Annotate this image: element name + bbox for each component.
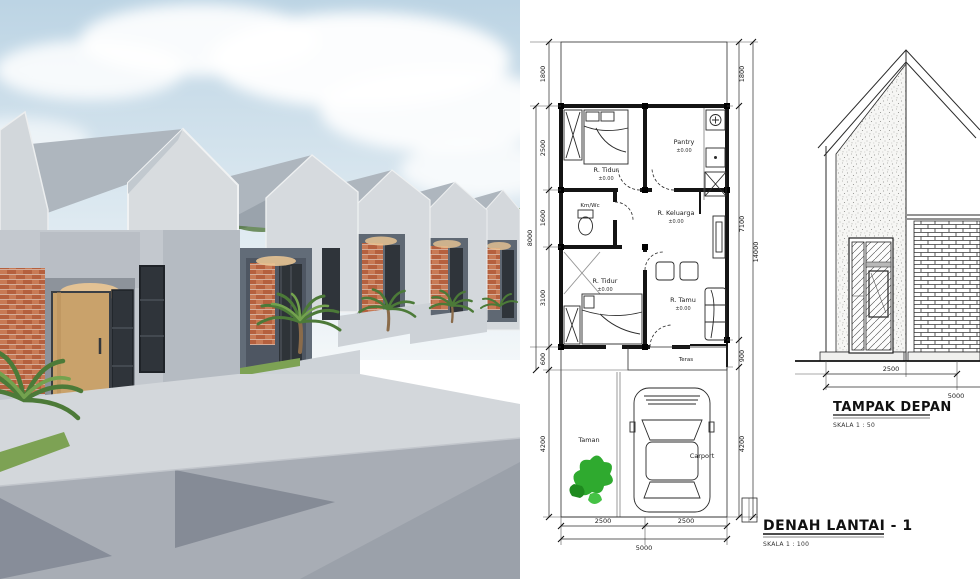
floor-plan-title: DENAH LANTAI - 1 — [763, 518, 913, 534]
dim-right-14000: 14000 — [752, 242, 760, 263]
brick-elevation-wall — [914, 221, 980, 352]
front-window — [140, 266, 164, 372]
room-label-family-room: R. Keluarga — [658, 209, 695, 217]
ground — [0, 374, 520, 579]
dim-right-4200: 4200 — [738, 436, 746, 453]
dim-left-3100: 3100 — [539, 290, 547, 307]
room-label-carport: Carport — [690, 452, 715, 460]
svg-text:±0.00: ±0.00 — [668, 219, 683, 225]
floor-plan-scale: SKALA 1 : 100 — [763, 541, 809, 548]
dim-right-900: 900 — [738, 350, 746, 362]
elevation-title: TAMPAK DEPAN — [833, 400, 952, 415]
dim-bottom-2500b: 2500 — [678, 517, 695, 525]
dim-left-2500: 2500 — [539, 140, 547, 157]
house-render-photo — [0, 0, 520, 579]
svg-text:±0.00: ±0.00 — [597, 287, 612, 293]
room-label-bedroom2: R. Tidur — [593, 277, 618, 285]
dim-left-4200: 4200 — [539, 436, 547, 453]
dim-left-1600: 1600 — [539, 210, 547, 227]
room-label-terrace: Teras — [678, 357, 693, 363]
door-sidelight — [112, 290, 133, 402]
room-label-garden: Taman — [577, 436, 599, 444]
dim-right-7100: 7100 — [738, 216, 746, 233]
elevation-door — [849, 238, 893, 353]
dim-left-600: 600 — [539, 353, 547, 365]
room-label-bathroom: Km/Wc — [580, 203, 599, 209]
room-label-living-room: R. Tamu — [670, 296, 696, 304]
dim-bottom-2500a: 2500 — [595, 517, 612, 525]
dim-elev-5000: 5000 — [948, 392, 965, 400]
room-label-bedroom1: R. Tidur — [594, 166, 619, 174]
technical-drawings: R. Tidur ±0.00 Pantry ±0.00 Km/Wc R. Kel… — [520, 0, 980, 579]
svg-text:±0.00: ±0.00 — [675, 306, 690, 312]
drawings-svg: R. Tidur ±0.00 Pantry ±0.00 Km/Wc R. Kel… — [520, 0, 980, 579]
page: R. Tidur ±0.00 Pantry ±0.00 Km/Wc R. Kel… — [0, 0, 980, 579]
plinth-right — [908, 352, 980, 361]
room-label-pantry: Pantry — [674, 138, 695, 146]
dim-elev-2500: 2500 — [883, 365, 900, 373]
elevation-scale: SKALA 1 : 50 — [833, 422, 875, 429]
render-illustration — [0, 0, 520, 579]
dim-right-1800: 1800 — [738, 66, 746, 83]
dim-bottom-5000: 5000 — [636, 544, 653, 552]
svg-text:±0.00: ±0.00 — [598, 176, 613, 182]
dim-left-1800: 1800 — [539, 66, 547, 83]
dim-left-8000: 8000 — [526, 230, 534, 247]
svg-text:±0.00: ±0.00 — [676, 148, 691, 154]
